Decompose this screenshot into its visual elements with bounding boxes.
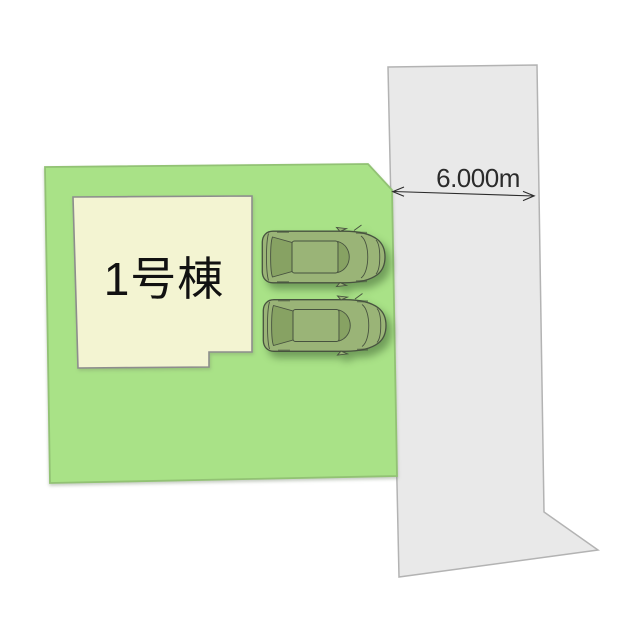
road-area <box>388 65 598 577</box>
site-plan-drawing: 1号棟 6.000m <box>0 0 640 640</box>
building-label: 1号棟 <box>104 253 225 305</box>
car-1 <box>262 225 385 287</box>
site-plan-canvas: 1号棟 6.000m <box>0 0 640 640</box>
car-2 <box>263 294 386 356</box>
road-width-label: 6.000m <box>436 163 520 193</box>
